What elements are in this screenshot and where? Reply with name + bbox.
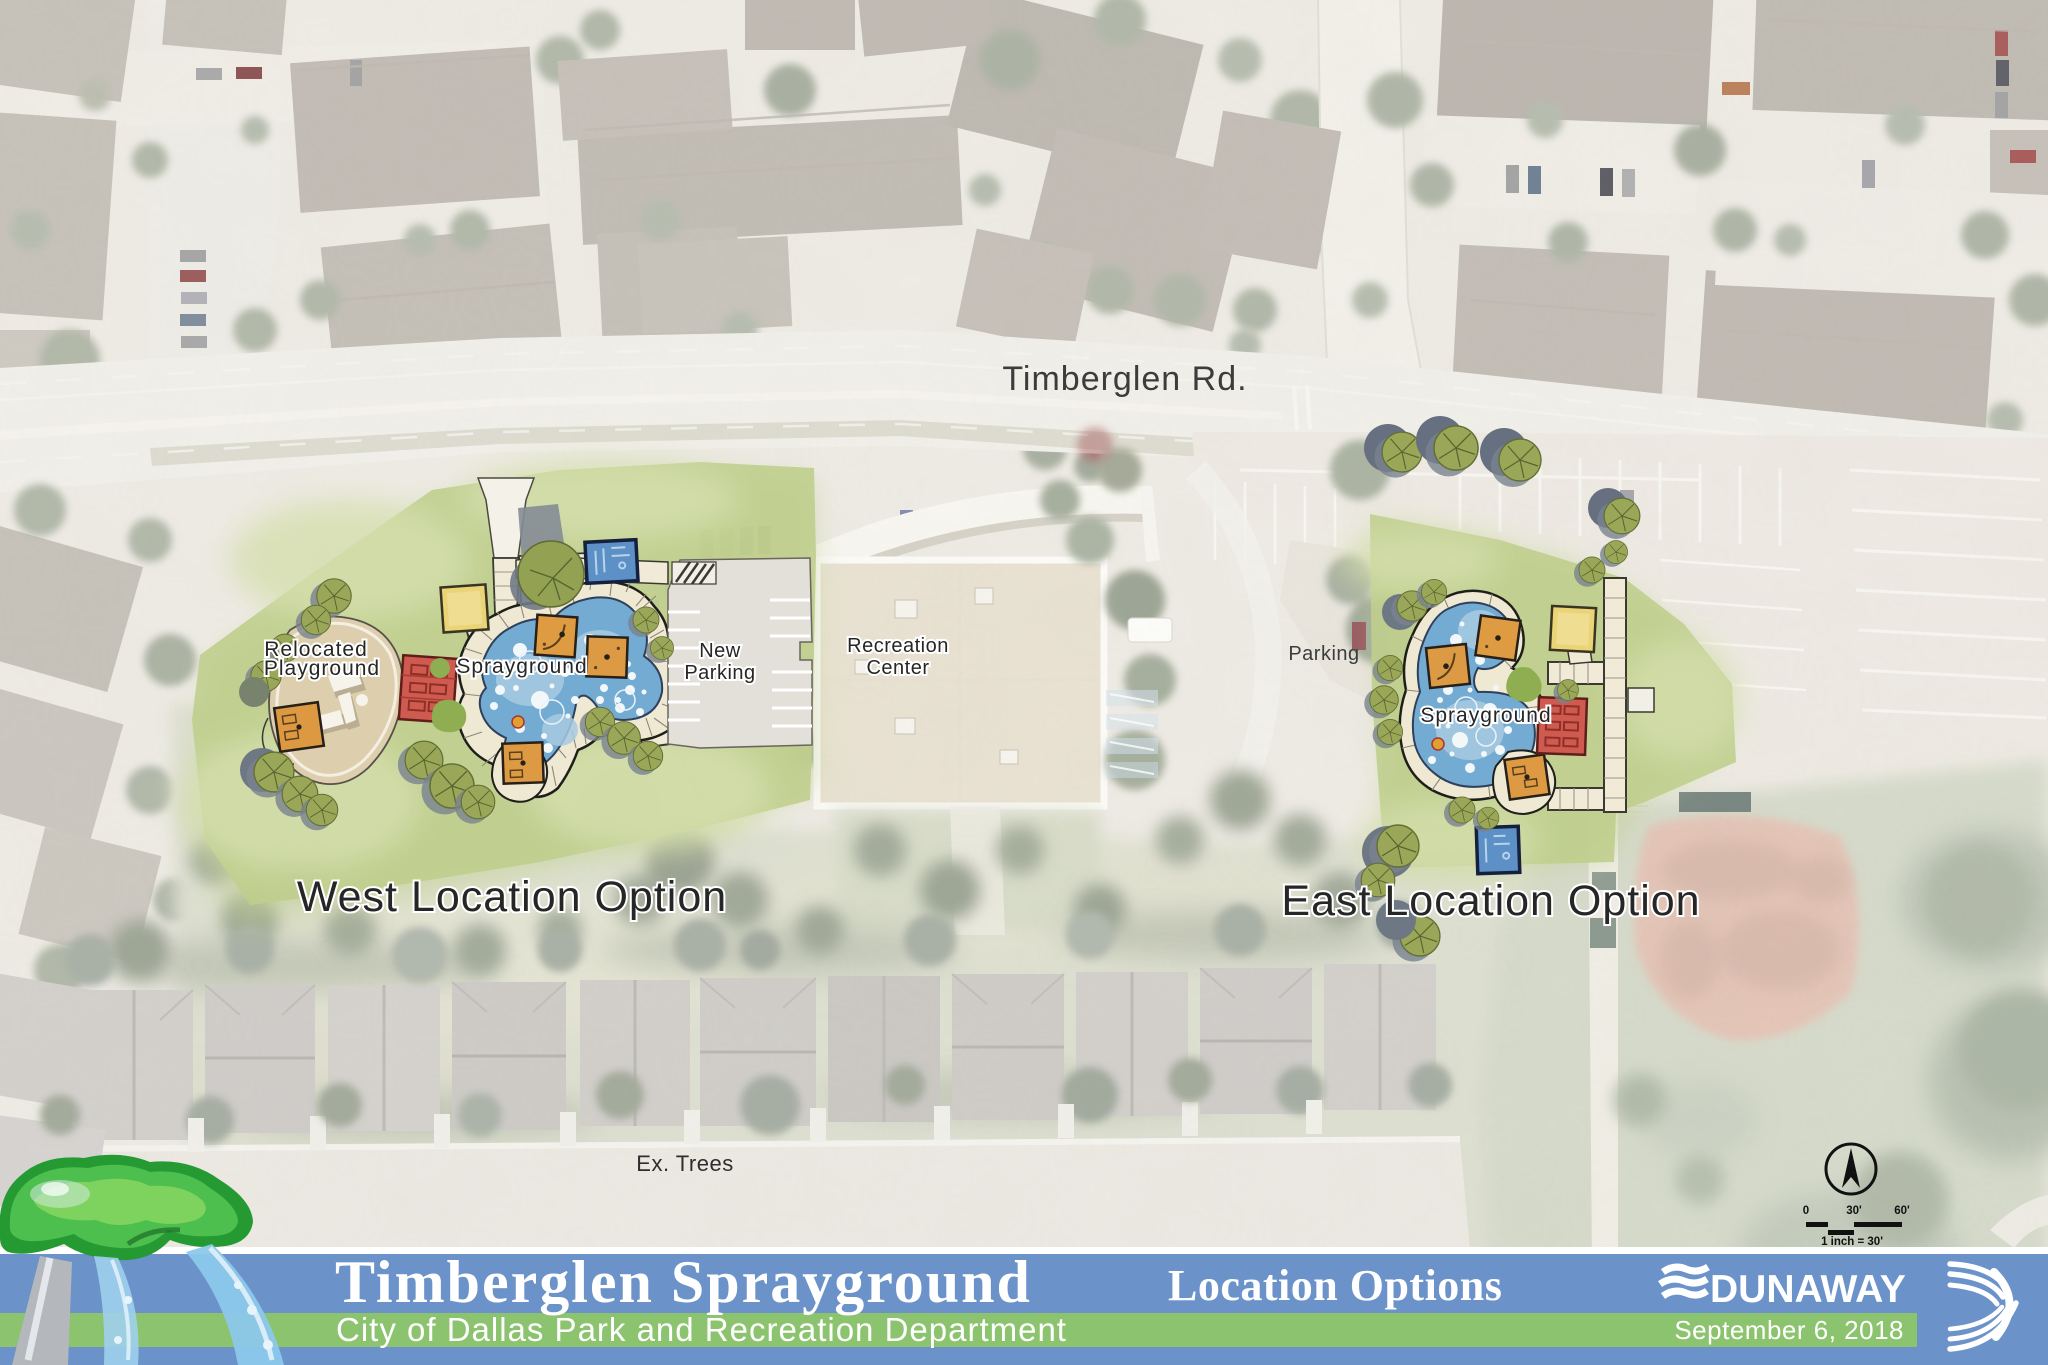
svg-text:West Location Option: West Location Option: [297, 873, 727, 921]
svg-text:30': 30': [1846, 1205, 1862, 1217]
svg-text:Ex. Trees: Ex. Trees: [636, 1151, 733, 1176]
svg-text:Sprayground: Sprayground: [1420, 704, 1551, 727]
svg-text:0: 0: [1803, 1205, 1809, 1217]
svg-text:Location Options: Location Options: [1168, 1261, 1502, 1310]
svg-text:Playground: Playground: [264, 657, 380, 680]
svg-text:1 inch = 30': 1 inch = 30': [1821, 1236, 1883, 1248]
svg-text:September 6, 2018: September 6, 2018: [1674, 1315, 1904, 1345]
svg-text:Timberglen Sprayground: Timberglen Sprayground: [335, 1249, 1032, 1315]
svg-text:DUNAWAY: DUNAWAY: [1710, 1268, 1906, 1311]
svg-text:East Location Option: East Location Option: [1281, 877, 1700, 925]
svg-text:Parking: Parking: [1288, 643, 1359, 665]
svg-text:60': 60': [1894, 1205, 1910, 1217]
svg-text:Parking: Parking: [684, 662, 755, 684]
svg-text:Timberglen Rd.: Timberglen Rd.: [1002, 360, 1247, 398]
svg-text:Sprayground: Sprayground: [456, 655, 587, 678]
svg-text:City of Dallas Park and Recrea: City of Dallas Park and Recreation Depar…: [336, 1311, 1067, 1348]
svg-text:Center: Center: [866, 657, 929, 679]
svg-text:Recreation: Recreation: [847, 635, 949, 657]
svg-text:New: New: [699, 640, 741, 662]
